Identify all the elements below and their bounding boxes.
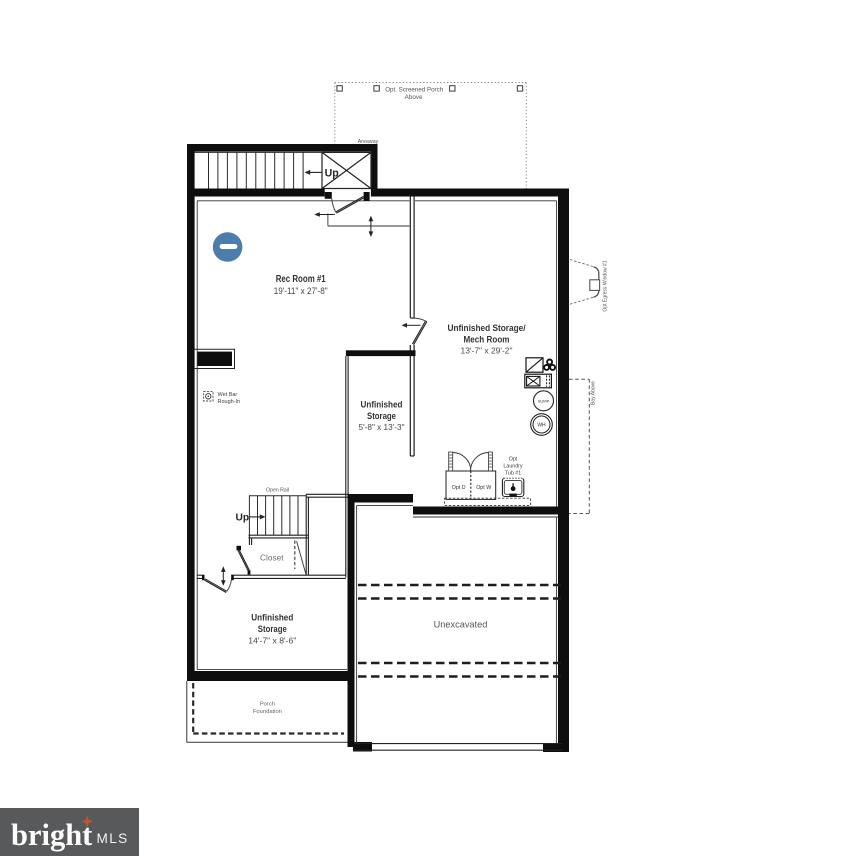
svg-text:Unfinished: Unfinished — [251, 613, 293, 623]
svg-text:Above: Above — [405, 94, 423, 101]
svg-text:Opt. Screened Porch: Opt. Screened Porch — [385, 86, 443, 93]
svg-text:WH: WH — [537, 423, 546, 429]
svg-text:Porch: Porch — [260, 702, 275, 708]
svg-text:Opt D: Opt D — [452, 485, 466, 491]
svg-text:Unexcavated: Unexcavated — [434, 619, 488, 629]
svg-text:Opt W: Opt W — [476, 485, 491, 491]
svg-text:Up: Up — [325, 168, 340, 180]
svg-text:Areaway: Areaway — [358, 139, 379, 145]
svg-text:Open Rail: Open Rail — [266, 488, 289, 494]
svg-text:Rec Room #1: Rec Room #1 — [276, 274, 326, 285]
svg-text:Closet: Closet — [260, 552, 284, 562]
svg-text:13'-7" x 29'-2": 13'-7" x 29'-2" — [461, 345, 513, 355]
svg-text:Foundation: Foundation — [253, 709, 282, 715]
svg-text:SUMP: SUMP — [538, 398, 550, 403]
svg-text:bright: bright — [11, 818, 93, 852]
svg-text:14'-7" x 8'-6": 14'-7" x 8'-6" — [248, 635, 296, 645]
svg-text:5'-8" x 13'-3": 5'-8" x 13'-3" — [359, 422, 405, 432]
svg-text:Unfinished: Unfinished — [361, 399, 403, 409]
svg-text:Storage: Storage — [367, 411, 396, 421]
svg-text:MLS: MLS — [97, 831, 129, 846]
svg-text:Laundry: Laundry — [503, 464, 522, 470]
svg-text:Up: Up — [236, 513, 250, 524]
svg-text:Rough-In: Rough-In — [218, 399, 241, 405]
svg-text:Unfinished Storage/: Unfinished Storage/ — [448, 323, 526, 333]
svg-text:Storage: Storage — [258, 624, 287, 634]
svg-text:Opt: Opt — [509, 457, 518, 463]
svg-text:19'-11" x 27'-8": 19'-11" x 27'-8" — [274, 286, 328, 296]
svg-text:Bay Above: Bay Above — [590, 381, 596, 405]
svg-text:Wet Bar: Wet Bar — [218, 392, 238, 398]
svg-text:Opt Egress Window #1: Opt Egress Window #1 — [602, 260, 608, 311]
svg-text:Tub #1: Tub #1 — [505, 470, 521, 476]
svg-text:Mech Room: Mech Room — [464, 335, 510, 345]
